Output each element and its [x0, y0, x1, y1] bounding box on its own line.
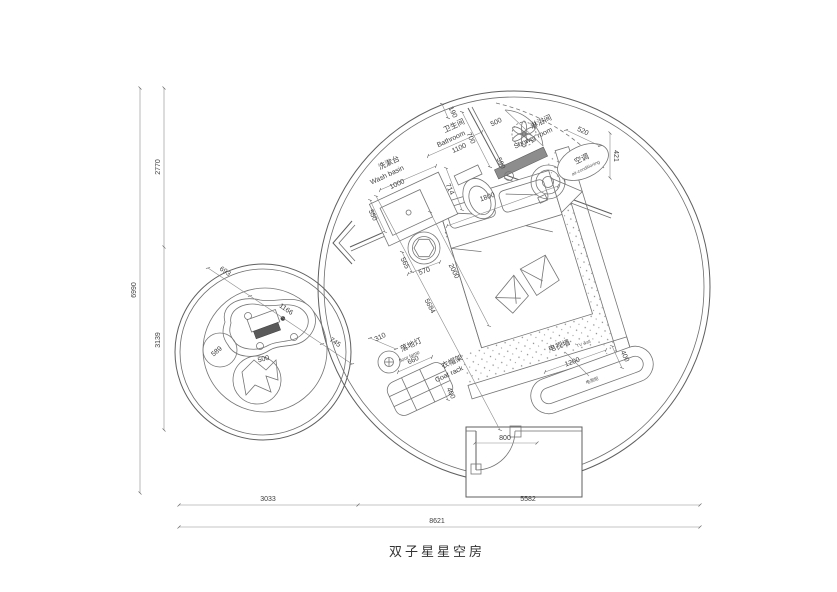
floorlamp-dia-dim: 310	[374, 332, 388, 343]
floorlamp-label-zh: 落地灯	[398, 335, 423, 354]
top-small-dim: 190	[447, 106, 458, 120]
junction-niche-wall-inner	[339, 225, 355, 261]
bedside-stool	[408, 232, 440, 264]
stool-dim-b: 570	[418, 266, 431, 277]
door-width-dim: 800	[499, 435, 511, 442]
entrance-vestibule	[466, 427, 582, 497]
floor-plan-canvas: 空调 air-conditioning	[0, 0, 837, 592]
floor-plan-drawing: 空调 air-conditioning	[0, 0, 837, 592]
bath-door-dim: 500	[490, 117, 504, 128]
stool-dim-a: 565	[399, 257, 411, 271]
beanbag-chair	[233, 356, 281, 404]
total-width-dim: 8621	[429, 518, 445, 525]
entrance	[466, 426, 582, 497]
table-seg3-dim: 745	[328, 337, 342, 349]
bath-inner-dim: 700	[465, 132, 476, 146]
lower-height-dim: 3139	[155, 332, 162, 348]
room-diag-dim: 5684	[423, 298, 437, 315]
left-width-dim: 3033	[260, 496, 276, 503]
floor-lamp	[378, 351, 400, 373]
junction-niche-wall	[333, 221, 352, 264]
bathroom-width-dim: 1100	[451, 142, 468, 155]
ac-depth-dim: 421	[612, 150, 619, 162]
pouf-dia-dim: 589	[210, 345, 224, 358]
right-width-dim: 5582	[520, 496, 536, 503]
total-height-dim: 6990	[131, 282, 138, 298]
drawing-title: 双子星星空房	[389, 544, 485, 559]
upper-height-dim: 2770	[155, 159, 162, 175]
shower-label-en: Shower room	[513, 127, 554, 151]
